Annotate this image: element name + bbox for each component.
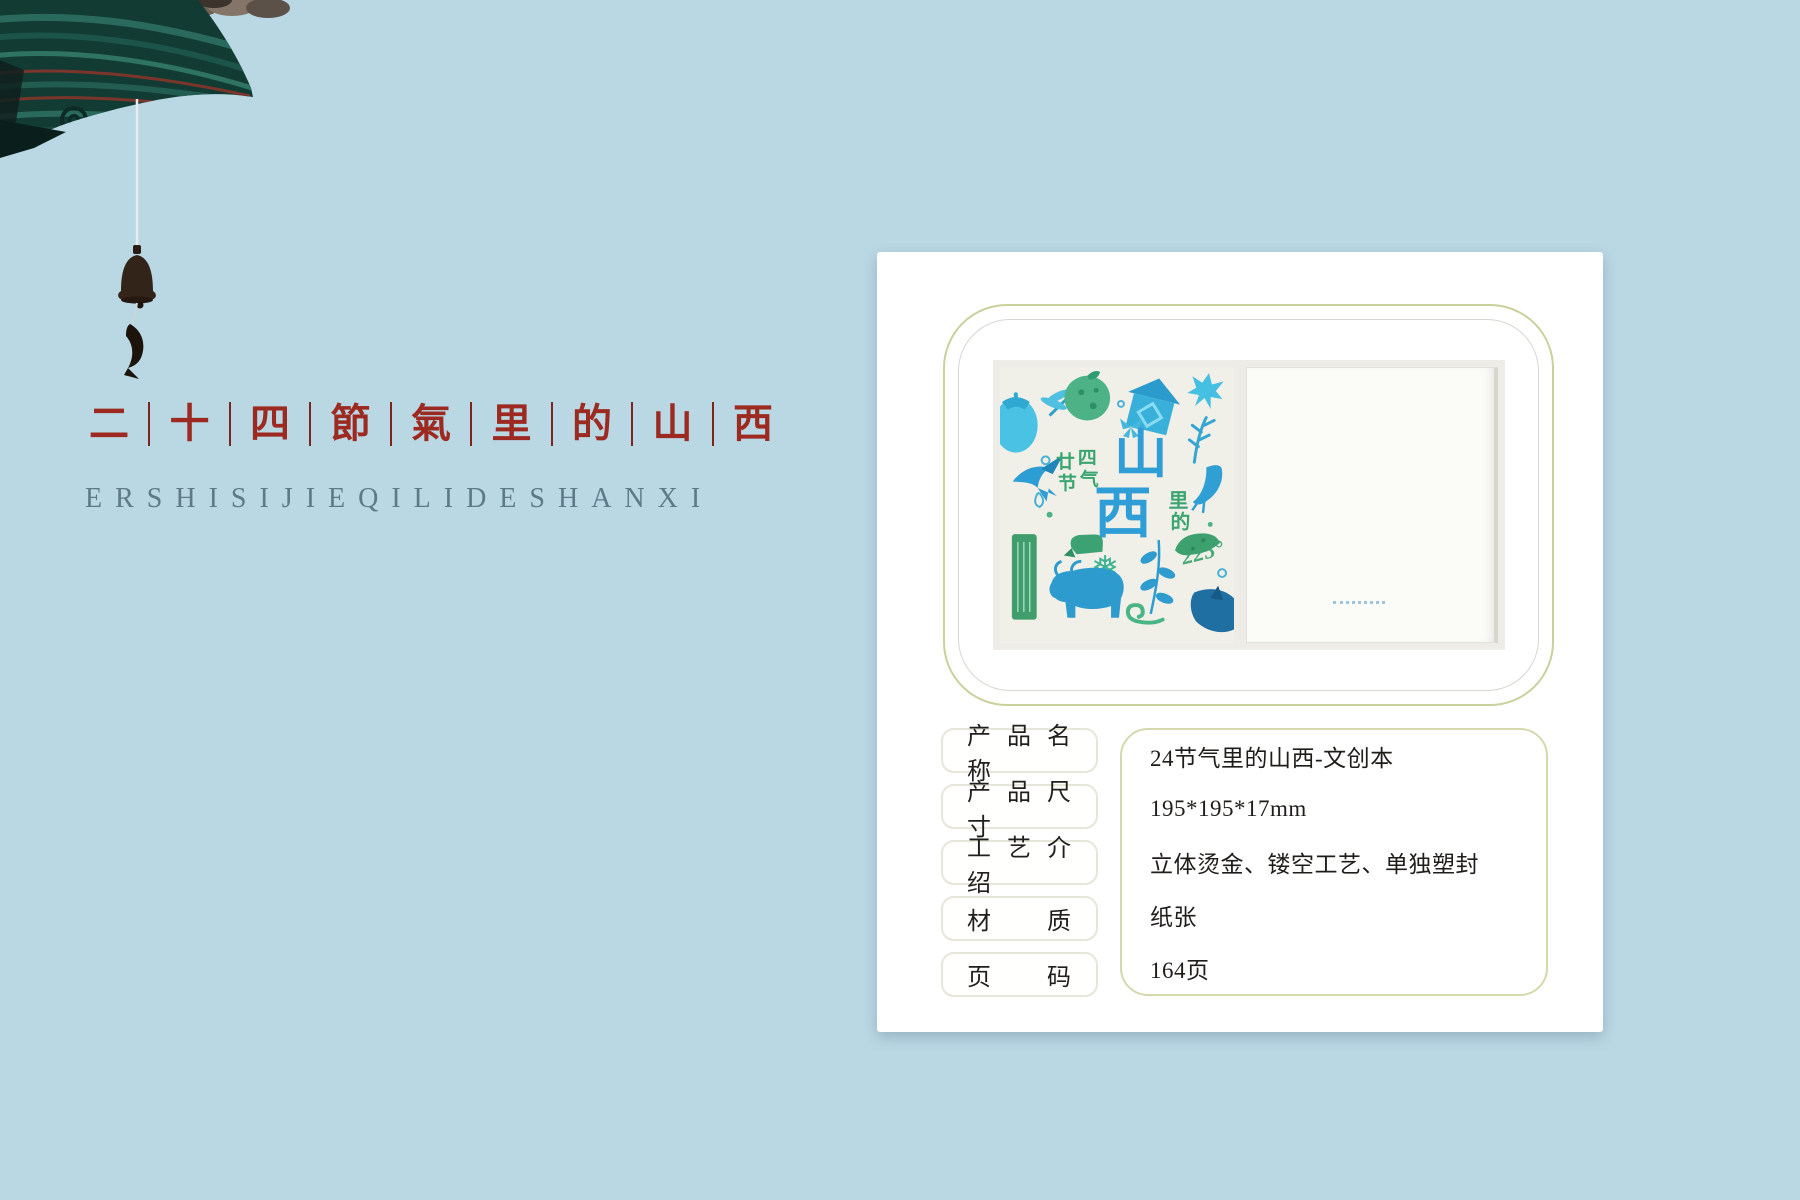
spec-value-pages: 164页 [1122,941,1546,994]
title-char: 十 [170,404,210,444]
page-title: 二 十 四 節 氣 里 的 山 西 [89,402,773,446]
title-char: 氣 [411,404,451,444]
spec-value-product-size: 195*195*17mm [1122,783,1546,836]
product-card: 廿 四 节 气 山 西 里 的 [877,252,1603,1032]
seal-stamp-icon [1011,534,1036,620]
svg-text:里: 里 [1168,490,1188,512]
spec-value-panel: 24节气里的山西-文创本 195*195*17mm 立体烫金、镂空工艺、单独塑封… [1120,728,1548,996]
title-char: 山 [653,404,693,444]
svg-text:四: 四 [1077,448,1096,469]
page-subtitle-pinyin: ERSHISIJIEQILIDESHANXI [85,483,713,515]
spec-label-craft: 工 艺 介 绍 [941,840,1098,885]
back-cover-imprint [1333,601,1385,604]
spec-label-text: 页 码 [967,957,1072,992]
roof-eave-icon [0,0,253,158]
title-divider [712,402,714,446]
book-front-cover: 廿 四 节 气 山 西 里 的 [1000,367,1234,643]
title-divider [470,402,472,446]
title-char: 節 [331,404,371,444]
product-image-panel: 廿 四 节 气 山 西 里 的 [943,304,1554,706]
title-char: 西 [733,404,773,444]
spec-label-text: 工 艺 介 绍 [967,828,1072,898]
svg-text:山: 山 [1114,426,1168,483]
product-photo: 廿 四 节 气 山 西 里 的 [993,360,1505,650]
spec-label-column: 产 品 名 称 产 品 尺 寸 工 艺 介 绍 材 质 页 码 [941,728,1098,1008]
fish-pendant-string [133,303,137,325]
svg-text:节: 节 [1058,474,1077,495]
product-image-frame: 廿 四 节 气 山 西 里 的 [958,319,1539,691]
spec-value-craft: 立体烫金、镂空工艺、单独塑封 [1122,836,1546,889]
fish-pendant-icon [124,324,143,379]
spec-label-text: 材 质 [967,901,1072,936]
title-divider [390,402,392,446]
wind-chime-bell-icon [118,245,156,309]
title-divider [551,402,553,446]
cover-label-lide: 里 的 [1168,490,1190,533]
svg-text:的: 的 [1170,511,1190,534]
title-divider [309,402,311,446]
spec-value-material: 纸张 [1122,888,1546,941]
front-cover-art: 廿 四 节 气 山 西 里 的 [1000,367,1234,643]
svg-text:廿: 廿 [1056,451,1075,473]
spec-value-product-name: 24节气里的山西-文创本 [1122,730,1546,783]
title-char: 里 [492,404,532,444]
title-char: 四 [250,404,290,444]
svg-text:西: 西 [1094,483,1152,545]
title-char: 的 [572,404,612,444]
spec-label-material: 材 质 [941,896,1098,941]
spec-label-product-size: 产 品 尺 寸 [941,784,1098,829]
title-char: 二 [89,404,129,444]
title-divider [631,402,633,446]
title-divider [229,402,231,446]
book-back-cover [1246,367,1498,643]
title-divider [148,402,150,446]
spec-label-pages: 页 码 [941,952,1098,997]
spec-label-product-name: 产 品 名 称 [941,728,1098,773]
page-background: 二 十 四 節 氣 里 的 山 西 ERSHISIJIEQILIDESHANXI [0,0,1800,1200]
roof-eave-ornament [0,0,300,400]
